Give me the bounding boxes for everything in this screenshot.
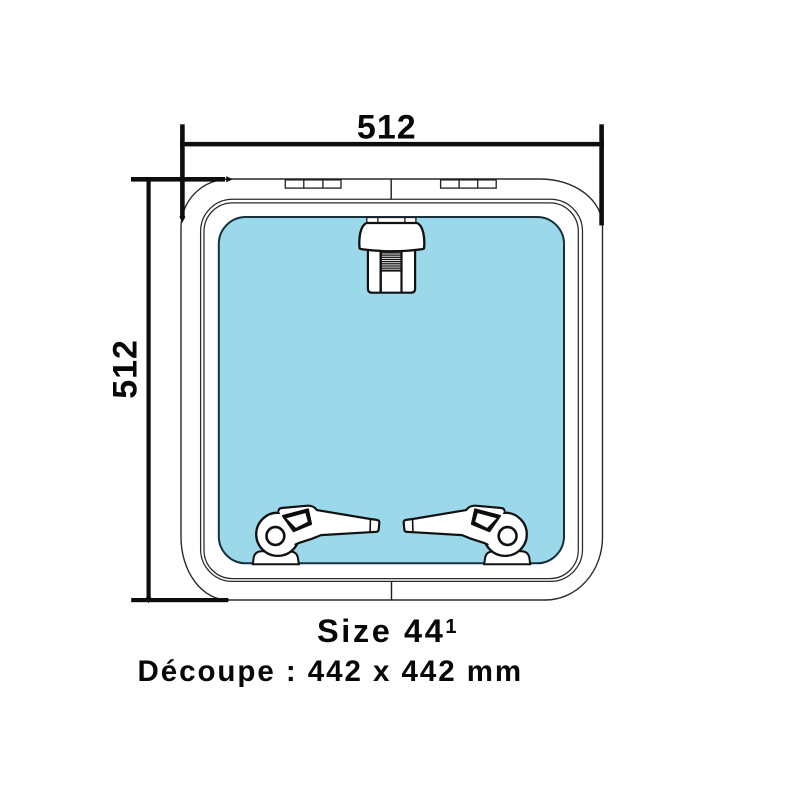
svg-text:512: 512 bbox=[357, 108, 417, 146]
svg-text:Découpe : 442 x 442 mm: Découpe : 442 x 442 mm bbox=[138, 655, 524, 688]
svg-text:Size 441: Size 441 bbox=[317, 613, 459, 649]
svg-text:512: 512 bbox=[106, 339, 144, 399]
